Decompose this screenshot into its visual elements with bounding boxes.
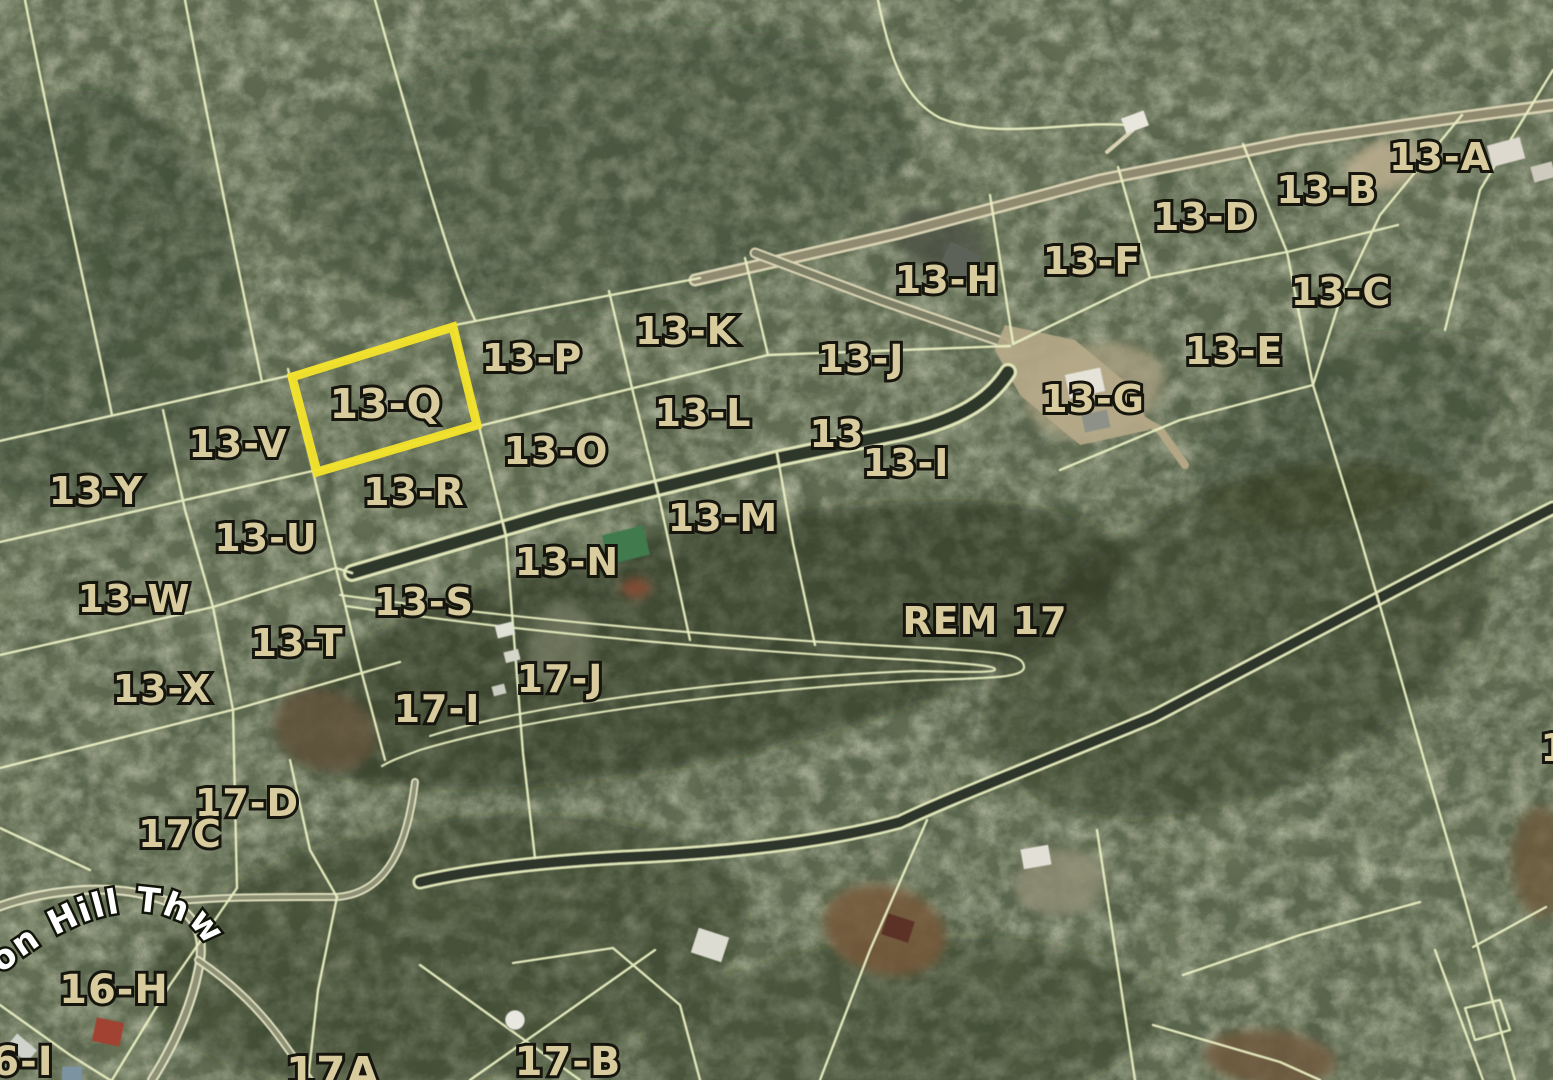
parcel-label-13-A: 13-A	[1389, 135, 1491, 179]
parcel-label-13-F: 13-F	[1043, 239, 1142, 283]
parcel-label-13-M: 13-M	[668, 496, 778, 540]
parcel-label-17C: 17C	[138, 812, 222, 856]
parcel-label-13-V: 13-V	[188, 422, 287, 466]
parcel-label-13-P: 13-P	[482, 336, 583, 380]
parcel-label-13-W: 13-W	[78, 577, 191, 621]
parcel-label-13-Q: 13-Q	[330, 380, 443, 428]
parcel-label-16-I: 16-I	[0, 1039, 54, 1080]
parcel-label-13-D: 13-D	[1153, 195, 1257, 239]
parcel-label-17-J: 17-J	[517, 657, 604, 701]
parcel-label-13-G: 13-G	[1041, 377, 1145, 421]
blue-grey-roof	[62, 1067, 82, 1080]
map-viewport: 13-A13-B13-D13-F13-H13-C13-K13-E13-P13-J…	[0, 0, 1553, 1080]
parcel-label-13-U: 13-U	[214, 516, 318, 560]
parcel-label-17-I: 17-I	[394, 687, 481, 731]
satellite-dish	[505, 1010, 525, 1030]
parcel-label-13-S: 13-S	[374, 580, 474, 624]
parcel-label-13-N: 13-N	[515, 540, 619, 584]
parcel-label-13-O: 13-O	[504, 429, 609, 473]
parcel-label-13-K: 13-K	[635, 309, 738, 353]
satellite-map[interactable]: 13-A13-B13-D13-F13-H13-C13-K13-E13-P13-J…	[0, 0, 1553, 1080]
parcel-label-16-H: 16-H	[59, 967, 169, 1013]
parcel-label-13-T: 13-T	[251, 621, 344, 665]
parcel-label-13-Y: 13-Y	[49, 469, 144, 513]
parcel-label-13-L: 13-L	[655, 391, 752, 435]
parcel-label-13: 13	[1541, 726, 1553, 770]
parcel-label-17-B: 17-B	[515, 1039, 622, 1080]
parcel-label-13-H: 13-H	[895, 258, 999, 302]
parcel-label-13-B: 13-B	[1276, 168, 1378, 212]
parcel-label-13-R: 13-R	[363, 470, 465, 514]
parcel-label-13: 13	[810, 412, 865, 456]
parcel-label-13-C: 13-C	[1291, 270, 1392, 314]
parcel-label-REM-17: REM 17	[902, 599, 1067, 643]
parcel-label-13-E: 13-E	[1185, 329, 1284, 373]
ground-clearing	[621, 579, 651, 597]
parcel-label-13-X: 13-X	[113, 667, 212, 711]
parcel-label-17A: 17A	[286, 1048, 380, 1080]
parcel-label-13-J: 13-J	[818, 337, 905, 381]
parcel-label-13-I: 13-I	[863, 441, 950, 485]
